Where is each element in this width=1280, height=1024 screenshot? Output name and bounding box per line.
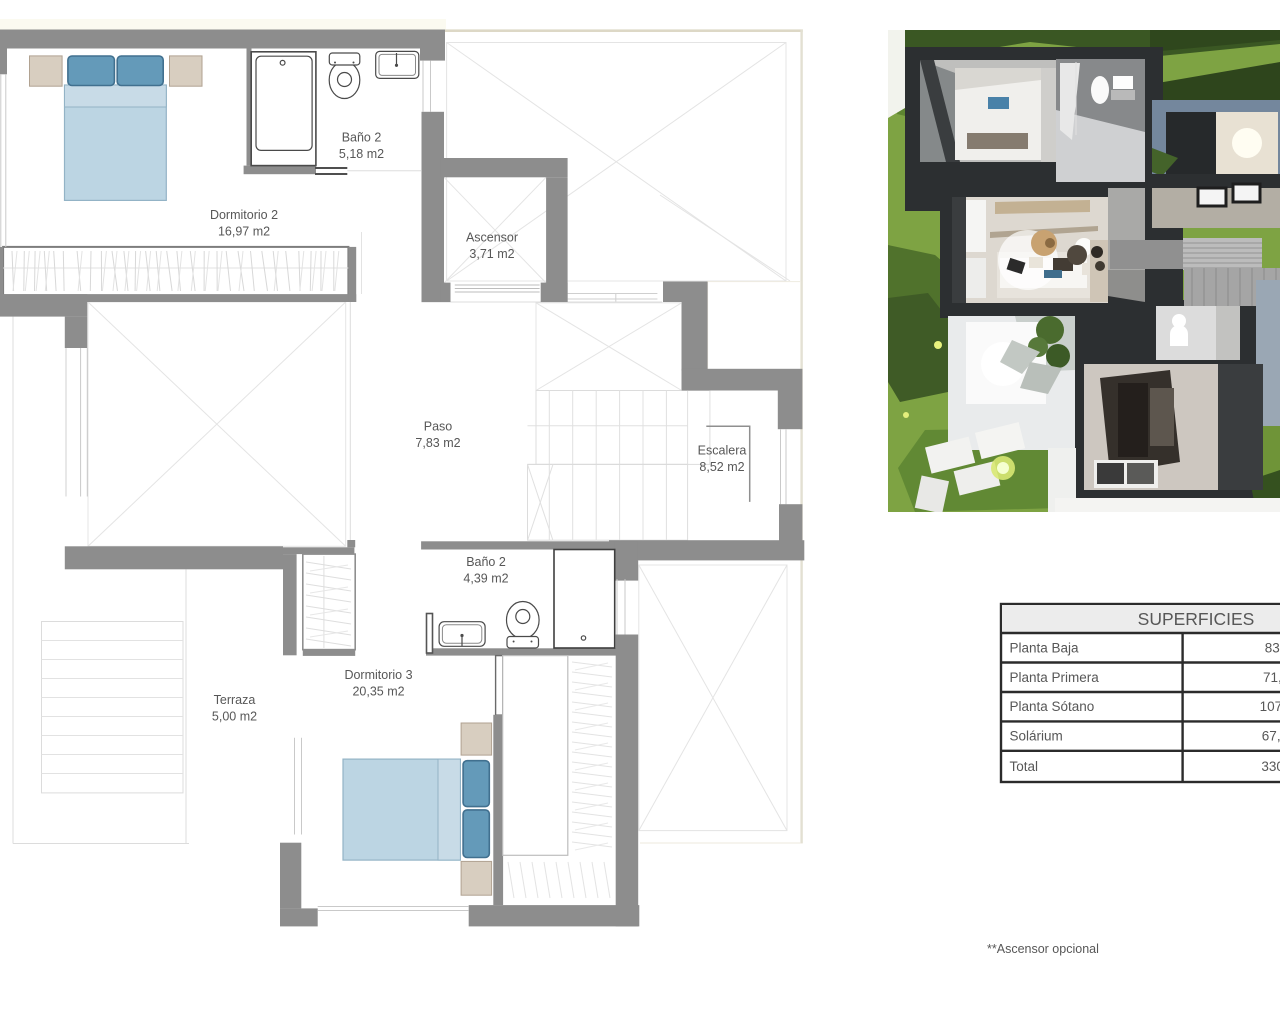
svg-text:Baño 2: Baño 2 bbox=[342, 131, 382, 145]
svg-text:Planta Baja: Planta Baja bbox=[1010, 640, 1080, 655]
svg-text:67,8: 67,8 bbox=[1262, 729, 1280, 744]
svg-text:83,: 83, bbox=[1265, 640, 1280, 655]
svg-text:Escalera: Escalera bbox=[698, 444, 747, 458]
svg-text:7,83 m2: 7,83 m2 bbox=[415, 436, 460, 450]
svg-text:Terraza: Terraza bbox=[214, 693, 256, 707]
svg-text:Baño 2: Baño 2 bbox=[466, 555, 506, 569]
svg-text:107,: 107, bbox=[1260, 699, 1280, 714]
svg-text:16,97 m2: 16,97 m2 bbox=[218, 225, 270, 239]
svg-text:71,9: 71,9 bbox=[1263, 670, 1280, 685]
svg-text:Paso: Paso bbox=[424, 420, 453, 434]
svg-text:**Ascensor opcional: **Ascensor opcional bbox=[987, 942, 1099, 956]
svg-text:Dormitorio 3: Dormitorio 3 bbox=[344, 668, 412, 682]
svg-text:4,39 m2: 4,39 m2 bbox=[463, 572, 508, 586]
svg-text:5,00 m2: 5,00 m2 bbox=[212, 710, 257, 724]
svg-text:5,18 m2: 5,18 m2 bbox=[339, 147, 384, 161]
svg-text:3,71 m2: 3,71 m2 bbox=[469, 247, 514, 261]
svg-text:SUPERFICIES: SUPERFICIES bbox=[1138, 609, 1255, 629]
svg-text:8,52 m2: 8,52 m2 bbox=[699, 460, 744, 474]
svg-text:330: 330 bbox=[1261, 759, 1280, 774]
svg-text:Ascensor: Ascensor bbox=[466, 231, 518, 245]
svg-text:Dormitorio 2: Dormitorio 2 bbox=[210, 208, 278, 222]
svg-text:Solárium: Solárium bbox=[1010, 729, 1063, 744]
svg-text:Planta Primera: Planta Primera bbox=[1010, 670, 1100, 685]
svg-text:20,35 m2: 20,35 m2 bbox=[352, 685, 404, 699]
svg-text:Total: Total bbox=[1010, 759, 1039, 774]
svg-text:Planta Sótano: Planta Sótano bbox=[1010, 699, 1095, 714]
